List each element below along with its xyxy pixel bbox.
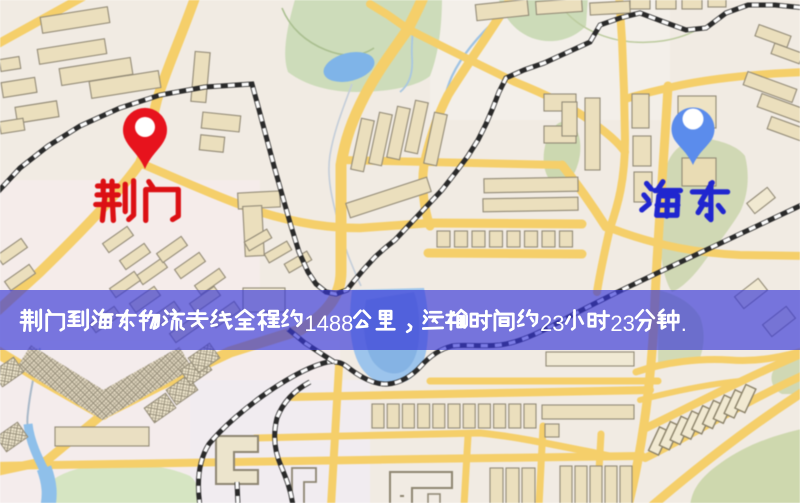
svg-text:23: 23 — [540, 311, 564, 336]
svg-text:.: . — [681, 311, 687, 336]
svg-text:1488: 1488 — [304, 311, 353, 336]
svg-text:23: 23 — [610, 311, 634, 336]
